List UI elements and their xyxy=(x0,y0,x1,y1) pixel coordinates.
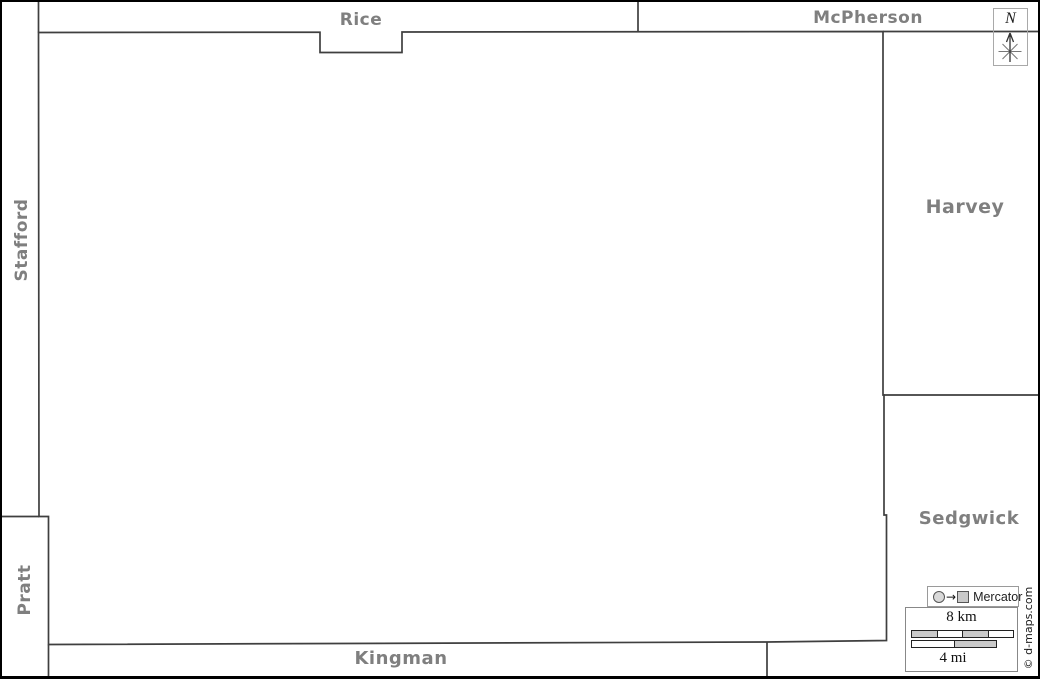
map-boundaries xyxy=(0,0,1040,679)
compass: N xyxy=(993,8,1028,66)
region-label-harvey: Harvey xyxy=(885,196,1040,218)
projection-legend: → Mercator xyxy=(927,586,1019,607)
north-arrow-icon xyxy=(994,9,1027,65)
projection-square-icon xyxy=(957,591,969,603)
county-map-canvas: Rice McPherson Stafford Pratt Harvey Sed… xyxy=(0,0,1040,679)
projection-circle-icon xyxy=(933,591,945,603)
region-label-mcpherson: McPherson xyxy=(788,7,948,29)
region-label-stafford: Stafford xyxy=(11,160,33,320)
copyright-credit: © d-maps.com xyxy=(1022,578,1036,678)
scale-km-label: 8 km xyxy=(906,609,1017,626)
center-county-outline xyxy=(39,32,887,645)
projection-name: Mercator xyxy=(973,590,1022,604)
region-label-kingman: Kingman xyxy=(321,648,481,670)
scale-km-bar xyxy=(911,630,1014,638)
scale-mi-label: 4 mi xyxy=(911,650,995,667)
projection-arrow-icon: → xyxy=(946,591,956,603)
scale-bar: 8 km 4 mi xyxy=(905,607,1018,672)
scale-mi-bar xyxy=(911,640,997,648)
region-label-rice: Rice xyxy=(286,9,436,31)
region-label-sedgwick: Sedgwick xyxy=(889,508,1040,530)
region-label-pratt: Pratt xyxy=(14,510,36,670)
